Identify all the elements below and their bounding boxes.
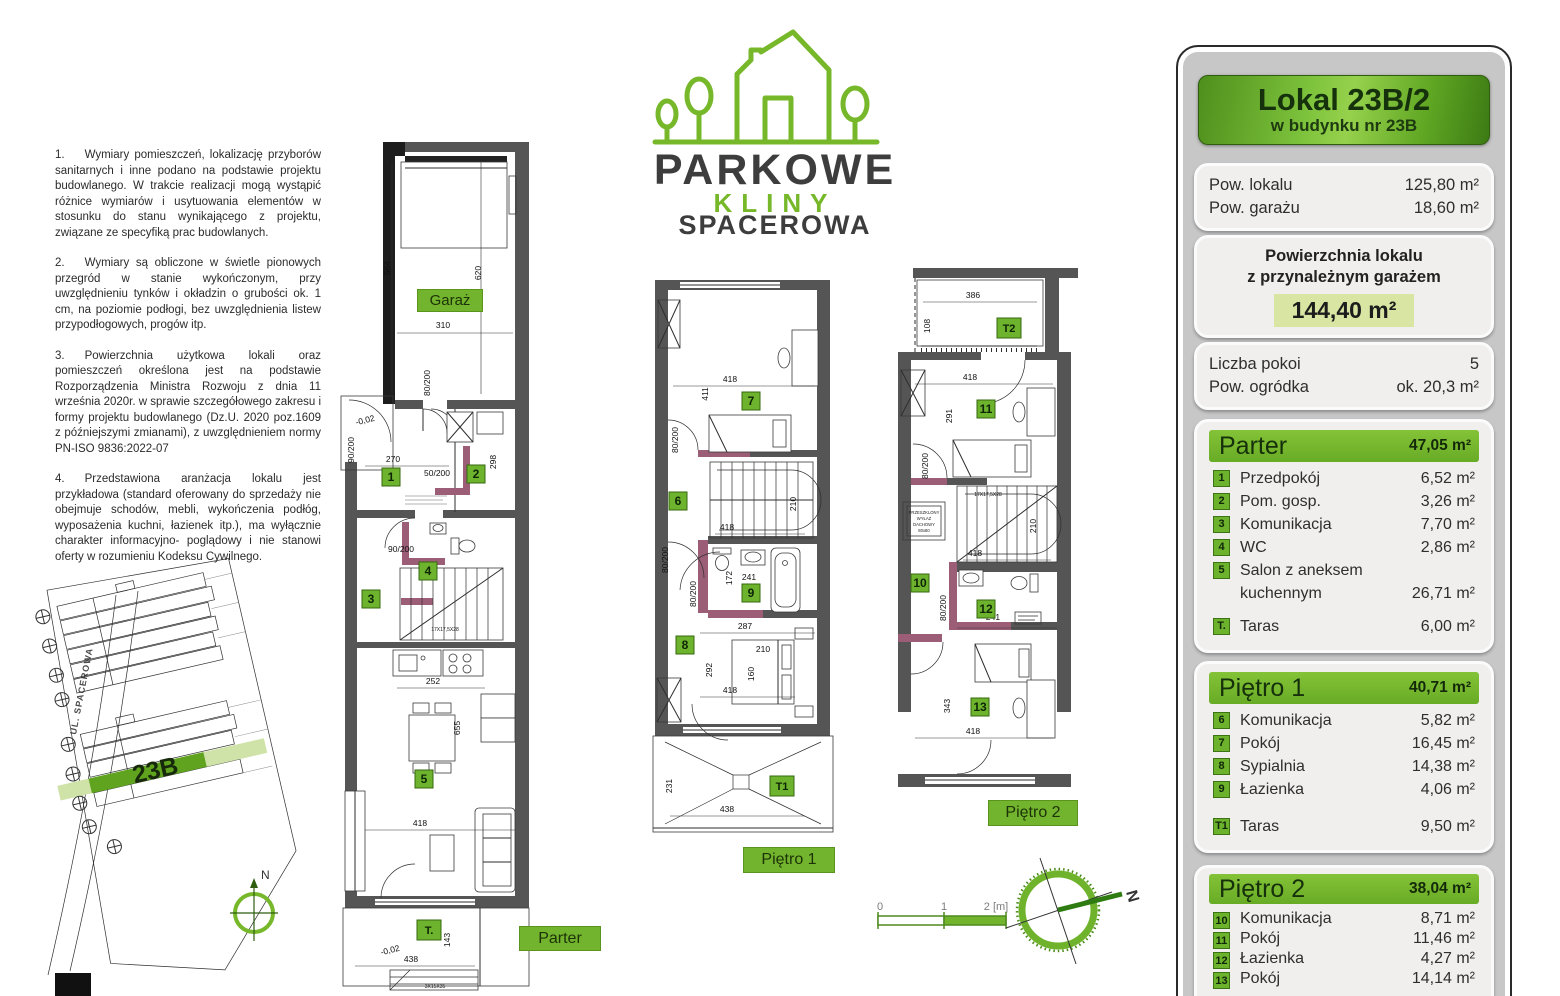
room-number-13: 13	[971, 698, 989, 716]
spacer	[1209, 801, 1479, 815]
dim: 3X15X35	[425, 984, 446, 990]
dim: 270	[386, 454, 400, 464]
room-row: 7Pokój16,45 m²	[1213, 732, 1475, 755]
svg-text:2: 2	[473, 467, 480, 481]
single-bed	[709, 415, 791, 452]
svg-text:T2: T2	[1003, 323, 1016, 335]
scale-tick-1: 1	[941, 901, 947, 913]
terrace-t1	[653, 736, 833, 832]
svg-text:PRZESZKLONY: PRZESZKLONY	[909, 510, 940, 515]
dim: 231	[664, 779, 674, 793]
unit-header: Lokal 23B/2 w budynku nr 23B	[1198, 75, 1490, 145]
info-label: Pow. ogródka	[1209, 376, 1309, 399]
info-row: Pow. ogródka ok. 20,3 m²	[1209, 376, 1479, 399]
sofa	[475, 808, 515, 892]
unit-subtitle: w budynku nr 23B	[1271, 116, 1417, 136]
svg-text:8: 8	[682, 638, 689, 652]
unit-title: Lokal 23B/2	[1258, 84, 1430, 116]
unit-info-sidebar: Lokal 23B/2 w budynku nr 23B Pow. lokalu…	[1176, 45, 1512, 996]
room-number-1: 1	[382, 468, 400, 486]
room-area: 8,71 m²	[1421, 909, 1475, 929]
taras-name: Taras	[1240, 815, 1421, 838]
desk	[778, 330, 818, 386]
room-number-5: 5	[415, 770, 433, 788]
total-area-panel: Powierzchnia lokalu z przynależnym garaż…	[1194, 235, 1494, 338]
dim: 50/200	[424, 468, 450, 478]
room-area: 14,14 m²	[1412, 969, 1475, 989]
room-name: Komunikacja	[1240, 709, 1421, 732]
info-row: Pow. garażu 18,60 m²	[1209, 197, 1479, 220]
dim: 80/200	[422, 370, 432, 396]
room-name: Łazienka	[1240, 778, 1421, 801]
room-name: Komunikacja	[1240, 513, 1421, 536]
floor-header: Piętro 1 40,71 m²	[1209, 672, 1479, 704]
note-paragraph: 2.Wymiary są obliczone w świetle pionowy…	[55, 256, 321, 334]
dim: 438	[720, 804, 734, 814]
floor-name: Piętro 2	[1219, 875, 1305, 904]
dim: 241	[742, 572, 756, 582]
spacer	[1209, 605, 1479, 615]
single-bed	[953, 440, 1031, 477]
dim: 210	[788, 497, 798, 511]
room-area: 6,52 m²	[1421, 467, 1475, 490]
info-value: 5	[1470, 353, 1479, 376]
room-number-7: 7	[742, 392, 760, 410]
info-label: Liczba pokoi	[1209, 353, 1301, 376]
svg-text:3: 3	[368, 592, 375, 606]
room-area: 4,06 m²	[1421, 778, 1475, 801]
room-row: 11Pokój11,46 m²	[1213, 929, 1475, 949]
taras-area: 6,00 m²	[1421, 615, 1475, 638]
dim: 655	[452, 721, 462, 735]
pietro2-label: Piętro 2	[988, 800, 1078, 826]
svg-text:80x80: 80x80	[918, 528, 930, 533]
dim: 172	[724, 571, 734, 585]
floor-header: Piętro 2 38,04 m²	[1209, 874, 1479, 904]
parter-floor-plan: 564 620 310 80/200 -0,02 90/200 270 50/2…	[335, 128, 535, 996]
info-label: Pow. lokalu	[1209, 174, 1292, 197]
floor-panel-pietro2: Piętro 2 38,04 m² 10Komunikacja8,71 m² 1…	[1194, 865, 1494, 996]
dim: 418	[413, 818, 427, 828]
total-area-caption: Powierzchnia lokalu	[1209, 246, 1479, 267]
room-name: Pokój	[1240, 969, 1412, 989]
taras-row: T.Taras6,00 m²	[1213, 615, 1475, 638]
total-area-value: 144,40 m²	[1274, 294, 1415, 327]
room-area: 2,86 m²	[1421, 536, 1475, 559]
taras-chip: T1	[1213, 818, 1230, 835]
site-compass: N	[230, 868, 278, 941]
svg-text:9: 9	[748, 586, 755, 600]
room-chip: 5	[1213, 562, 1230, 579]
svg-text:WYŁAZ: WYŁAZ	[917, 516, 932, 521]
pietro1-floor-plan: 418 411 80/200 210 418 80/200 172 241 80…	[645, 272, 840, 872]
garage-label: Garaż	[417, 289, 483, 312]
note-number: 2.	[55, 257, 65, 269]
desk	[1013, 680, 1055, 738]
compass-rose: N	[1000, 850, 1140, 970]
floor-area: 40,71 m²	[1409, 679, 1471, 697]
room-chip: 7	[1213, 735, 1230, 752]
room-chip: 12	[1213, 952, 1230, 969]
room-row: 4WC2,86 m²	[1213, 536, 1475, 559]
dim: 310	[436, 320, 450, 330]
dim: 418	[968, 548, 982, 558]
dim: 210	[1028, 519, 1038, 533]
site-map: UL. SPACEROWA	[30, 545, 320, 996]
room-row: 13Pokój14,14 m²	[1213, 969, 1475, 989]
svg-text:13: 13	[973, 700, 987, 714]
rooms-garden-panel: Liczba pokoi 5 Pow. ogródka ok. 20,3 m²	[1194, 342, 1494, 410]
room-chip: 10	[1213, 912, 1230, 929]
single-bed	[975, 644, 1031, 682]
room-number-11: 11	[977, 400, 995, 418]
taras-area: 9,50 m²	[1421, 815, 1475, 838]
dim: 418	[963, 372, 977, 382]
room-name: Pokój	[1240, 732, 1412, 755]
room-number-3: 3	[362, 590, 380, 608]
room-name: Łazienka	[1240, 949, 1421, 969]
parter-label: Parter	[519, 926, 601, 951]
room-number-12: 12	[977, 600, 995, 618]
svg-text:10: 10	[913, 576, 927, 590]
note-paragraph: 1.Wymiary pomieszczeń, lokalizację przyb…	[55, 148, 321, 241]
dim: 80/200	[670, 427, 680, 453]
dim: 620	[473, 266, 483, 280]
dim: 108	[922, 319, 932, 333]
note-number: 1.	[55, 149, 65, 161]
dim: 80/200	[688, 581, 698, 607]
parkowe-kliny-logo: PARKOWE KLINY SPACEROWA	[625, 22, 925, 237]
building-cluster: 23B	[30, 549, 319, 996]
dim: 80/200	[938, 595, 948, 621]
logo-name: PARKOWE	[654, 146, 896, 194]
info-row: Pow. lokalu 125,80 m²	[1209, 174, 1479, 197]
info-value: 125,80 m²	[1405, 174, 1479, 197]
room-number-2: 2	[467, 465, 485, 483]
dim: 143	[442, 933, 452, 947]
room-name: WC	[1240, 536, 1421, 559]
dim: 343	[942, 699, 952, 713]
room-area: 5,82 m²	[1421, 709, 1475, 732]
note-paragraph: 3.Powierzchnia użytkowa lokali oraz pomi…	[55, 349, 321, 458]
room-name-line1: Salon z aneksem	[1240, 559, 1475, 582]
highlighted-unit-label: 23B	[130, 752, 181, 790]
compass-north-label: N	[1122, 888, 1140, 904]
room-area: 14,38 m²	[1412, 755, 1475, 778]
dim: 90/200	[388, 544, 414, 554]
pietro1-label: Piętro 1	[743, 847, 835, 873]
dim: 210	[756, 644, 770, 654]
floor-area: 47,05 m²	[1409, 437, 1471, 455]
svg-text:5: 5	[421, 772, 428, 786]
room-number-8: 8	[676, 636, 694, 654]
logo-house-trees-icon	[655, 32, 877, 142]
desk	[1013, 388, 1055, 436]
highlighted-unit: 23B	[56, 731, 269, 806]
svg-text:4: 4	[425, 564, 432, 578]
room-chip: 4	[1213, 539, 1230, 556]
room-number-4: 4	[419, 562, 437, 580]
dim: 252	[426, 676, 440, 686]
legal-notes: 1.Wymiary pomieszczeń, lokalizację przyb…	[55, 148, 321, 580]
room-name: Salon z aneksem kuchennym 26,71 m²	[1240, 559, 1475, 605]
double-bed	[732, 628, 813, 717]
info-label: Pow. garażu	[1209, 197, 1300, 220]
room-number-10: 10	[911, 574, 929, 592]
dim: -0,02	[354, 413, 375, 427]
floor-panel-parter: Parter 47,05 m² 1Przedpokój6,52 m² 2Pom.…	[1194, 419, 1494, 653]
dim: 291	[944, 409, 954, 423]
fine-print-box	[405, 496, 447, 504]
door-arc	[981, 360, 1025, 404]
svg-text:T.: T.	[425, 925, 434, 937]
room-row: 12Łazienka4,27 m²	[1213, 949, 1475, 969]
room-row: 1Przedpokój6,52 m²	[1213, 467, 1475, 490]
floor-panel-pietro1: Piętro 1 40,71 m² 6Komunikacja5,82 m² 7P…	[1194, 661, 1494, 853]
door-arc	[911, 642, 943, 674]
room-area: 3,26 m²	[1421, 490, 1475, 513]
note-number: 3.	[55, 350, 65, 362]
note-text: Powierzchnia użytkowa lokali oraz pomies…	[55, 350, 321, 455]
dim: 298	[488, 455, 498, 469]
room-row: 5 Salon z aneksem kuchennym 26,71 m²	[1213, 559, 1475, 605]
svg-text:12: 12	[979, 602, 993, 616]
areas-panel: Pow. lokalu 125,80 m² Pow. garażu 18,60 …	[1194, 163, 1494, 231]
room-name: Pom. gosp.	[1240, 490, 1421, 513]
floor-name: Parter	[1219, 432, 1287, 461]
room-chip: 6	[1213, 712, 1230, 729]
dim: 80/200	[920, 453, 930, 479]
room-chip: 2	[1213, 493, 1230, 510]
room-chip: 8	[1213, 758, 1230, 775]
terrace-chip: T.	[417, 920, 441, 940]
svg-text:6: 6	[675, 494, 682, 508]
scale-bar: 0 1 2 [m]	[872, 898, 1012, 940]
legend-square	[55, 973, 91, 996]
dim: 418	[723, 374, 737, 384]
info-value: ok. 20,3 m²	[1396, 376, 1479, 399]
coffee-table	[430, 835, 454, 871]
taras-chip: T.	[1213, 618, 1230, 635]
info-row: Liczba pokoi 5	[1209, 353, 1479, 376]
room-chip: 11	[1213, 932, 1230, 949]
room-area: 26,71 m²	[1412, 582, 1475, 605]
room-row: 6Komunikacja5,82 m²	[1213, 709, 1475, 732]
compass-north-label: N	[261, 868, 270, 882]
room-name: Komunikacja	[1240, 909, 1421, 929]
wardrobe	[345, 791, 365, 891]
svg-text:T1: T1	[776, 781, 789, 793]
dim: -0,02	[379, 943, 400, 957]
room-area: 11,46 m²	[1413, 929, 1475, 949]
note-text: Wymiary pomieszczeń, lokalizację przybor…	[55, 149, 321, 239]
room-area: 7,70 m²	[1421, 513, 1475, 536]
terrace-chip: T2	[997, 318, 1021, 338]
taras-row: T1Taras9,50 m²	[1213, 815, 1475, 838]
scale-tick-0: 0	[877, 901, 883, 913]
room-chip: 3	[1213, 516, 1230, 533]
room-area: 16,45 m²	[1412, 732, 1475, 755]
wc-fixtures	[430, 523, 475, 554]
logo-street: SPACEROWA	[678, 210, 871, 237]
floor-area: 38,04 m²	[1409, 880, 1471, 898]
washer-dryer	[447, 412, 503, 442]
floor-header: Parter 47,05 m²	[1209, 430, 1479, 462]
door-arc	[913, 444, 947, 478]
info-value: 18,60 m²	[1414, 197, 1479, 220]
room-number-6: 6	[669, 492, 687, 510]
room-chip: 13	[1213, 972, 1230, 989]
dim: 438	[404, 954, 418, 964]
dim: 292	[704, 663, 714, 677]
dim: 287	[738, 621, 752, 631]
dim: 411	[700, 387, 710, 401]
svg-text:7: 7	[748, 394, 755, 408]
terrace-chip: T1	[770, 776, 794, 796]
door-arc	[957, 740, 991, 774]
total-area-caption: z przynależnym garażem	[1209, 267, 1479, 288]
room-row: 3Komunikacja7,70 m²	[1213, 513, 1475, 536]
room-row: 9Łazienka4,06 m²	[1213, 778, 1475, 801]
terrace-door-arc	[381, 864, 415, 898]
pietro2-floor-plan: PRZESZKLONY WYŁAZ DACHOWY 80x80 386	[885, 268, 1090, 798]
dim: 17X17,5X28	[431, 627, 459, 633]
dim: 418	[720, 522, 734, 532]
dining-table	[409, 703, 455, 773]
room-row: 10Komunikacja8,71 m²	[1213, 909, 1475, 929]
dim: 17X17,5X28	[974, 492, 1002, 498]
room-area: 4,27 m²	[1421, 949, 1475, 969]
room-number-9: 9	[742, 584, 760, 602]
room-row: 8Sypialnia14,38 m²	[1213, 755, 1475, 778]
room-name-rest: kuchennym	[1240, 582, 1322, 605]
note-number: 4.	[55, 473, 65, 485]
brochure-page: 1.Wymiary pomieszczeń, lokalizację przyb…	[0, 0, 1560, 996]
spacer	[1209, 989, 1479, 996]
dim: 418	[966, 726, 980, 736]
room-name-line2: kuchennym 26,71 m²	[1240, 582, 1475, 605]
dim: 418	[723, 685, 737, 695]
dim: 160	[746, 667, 756, 681]
room-name: Sypialnia	[1240, 755, 1412, 778]
room-row: 2Pom. gosp.3,26 m²	[1213, 490, 1475, 513]
svg-text:1: 1	[388, 470, 395, 484]
svg-text:DACHOWY: DACHOWY	[913, 522, 935, 527]
room-name: Przedpokój	[1240, 467, 1421, 490]
dim: 564	[382, 261, 392, 275]
floor-name: Piętro 1	[1219, 674, 1305, 703]
note-text: Wymiary są obliczone w świetle pionowych…	[55, 257, 321, 331]
dim: 90/200	[346, 437, 356, 463]
room-name: Pokój	[1240, 929, 1413, 949]
svg-text:11: 11	[980, 402, 993, 416]
room-chip: 1	[1213, 470, 1230, 487]
dim: 386	[966, 290, 980, 300]
taras-name: Taras	[1240, 615, 1421, 638]
dim: 80/200	[660, 547, 670, 573]
room-chip: 9	[1213, 781, 1230, 798]
